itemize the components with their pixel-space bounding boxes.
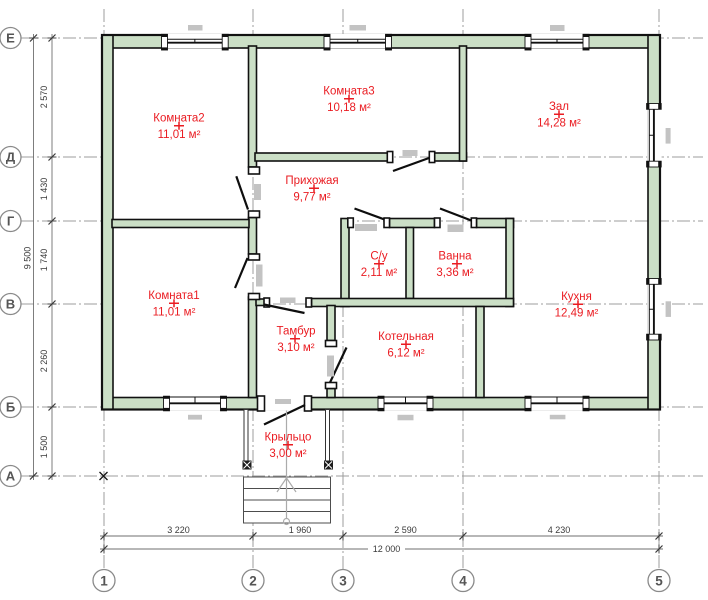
svg-text:10,18 м²: 10,18 м² [327, 102, 371, 114]
svg-text:Г: Г [7, 214, 15, 229]
svg-text:12,49 м²: 12,49 м² [555, 308, 599, 320]
svg-text:2: 2 [249, 574, 257, 589]
svg-text:2 260: 2 260 [39, 350, 49, 373]
svg-text:5: 5 [655, 574, 663, 589]
svg-text:Прихожая: Прихожая [285, 175, 338, 187]
svg-text:9,77 м²: 9,77 м² [293, 192, 330, 204]
svg-text:3 220: 3 220 [167, 525, 190, 535]
svg-text:2 590: 2 590 [394, 525, 417, 535]
svg-text:Ванна: Ванна [438, 251, 472, 263]
svg-text:11,01 м²: 11,01 м² [153, 307, 196, 319]
svg-text:Кухня: Кухня [561, 291, 592, 303]
svg-text:4 230: 4 230 [548, 525, 571, 535]
svg-text:3,00 м²: 3,00 м² [269, 448, 306, 460]
svg-text:6,12 м²: 6,12 м² [387, 348, 424, 360]
svg-text:А: А [6, 469, 16, 484]
svg-text:В: В [6, 297, 15, 312]
svg-text:1 960: 1 960 [289, 525, 312, 535]
svg-text:9 500: 9 500 [22, 247, 32, 270]
svg-text:1: 1 [100, 574, 108, 589]
svg-text:11,01 м²: 11,01 м² [158, 129, 201, 141]
svg-text:12 000: 12 000 [373, 544, 401, 554]
svg-text:2 570: 2 570 [39, 86, 49, 109]
svg-text:Б: Б [6, 400, 15, 415]
svg-text:1 500: 1 500 [39, 436, 49, 459]
svg-text:Е: Е [6, 31, 15, 46]
svg-text:1 740: 1 740 [39, 249, 49, 272]
svg-text:3: 3 [339, 574, 347, 589]
svg-text:1 430: 1 430 [39, 178, 49, 201]
svg-text:Тамбур: Тамбур [276, 326, 315, 338]
svg-text:14,28 м²: 14,28 м² [537, 118, 581, 130]
svg-text:2,11 м²: 2,11 м² [361, 267, 398, 279]
svg-text:3,36 м²: 3,36 м² [436, 267, 473, 279]
svg-text:4: 4 [459, 574, 467, 589]
svg-text:Д: Д [6, 150, 16, 165]
svg-text:3,10 м²: 3,10 м² [277, 342, 314, 354]
